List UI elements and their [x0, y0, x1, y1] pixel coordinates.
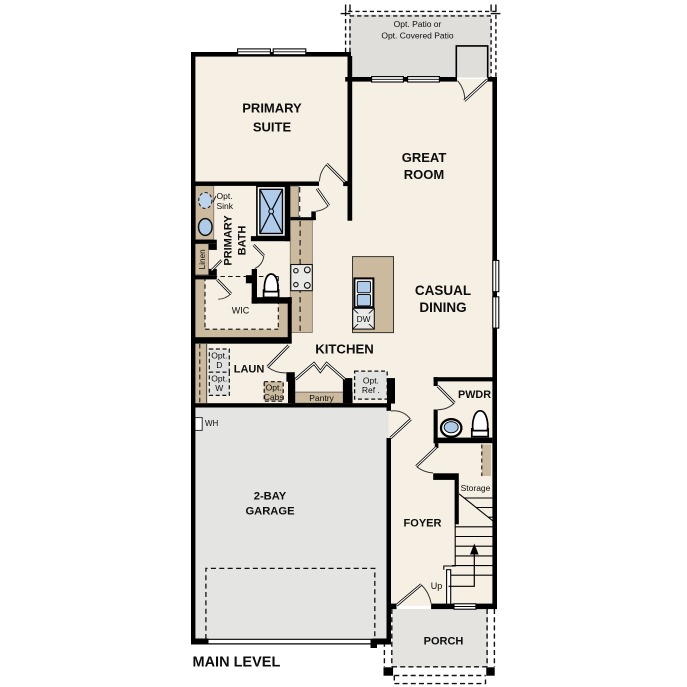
svg-text:Pantry: Pantry — [309, 393, 334, 403]
svg-text:Opt.: Opt. — [211, 351, 227, 361]
svg-text:Ref .: Ref . — [362, 385, 380, 395]
svg-text:Sink: Sink — [217, 201, 234, 211]
svg-text:GREAT: GREAT — [402, 150, 447, 165]
svg-text:Opt.: Opt. — [217, 191, 233, 201]
svg-text:GARAGE: GARAGE — [245, 506, 295, 518]
svg-text:Storage: Storage — [461, 483, 491, 493]
svg-text:PORCH: PORCH — [424, 636, 464, 648]
svg-text:Opt. Patio or: Opt. Patio or — [394, 19, 442, 29]
svg-text:PWDR: PWDR — [458, 389, 491, 401]
svg-text:Linen: Linen — [198, 249, 207, 269]
svg-text:CASUAL: CASUAL — [415, 283, 471, 298]
svg-text:DW: DW — [357, 314, 371, 324]
svg-text:SUITE: SUITE — [253, 120, 292, 135]
svg-text:PRIMARY: PRIMARY — [242, 101, 302, 116]
svg-text:D: D — [216, 360, 222, 370]
svg-text:Opt.: Opt. — [211, 374, 227, 384]
svg-text:PRIMARY: PRIMARY — [223, 215, 235, 266]
svg-text:BATH: BATH — [237, 226, 249, 256]
svg-text:ROOM: ROOM — [404, 167, 444, 182]
svg-text:FOYER: FOYER — [404, 517, 442, 529]
svg-text:Up: Up — [431, 581, 443, 591]
svg-text:Opt.: Opt. — [363, 376, 379, 386]
svg-text:Cabs: Cabs — [264, 392, 284, 402]
svg-text:Opt. Covered Patio: Opt. Covered Patio — [381, 31, 454, 41]
svg-text:WIC: WIC — [232, 306, 250, 316]
svg-text:2-BAY: 2-BAY — [254, 491, 287, 503]
svg-text:DINING: DINING — [419, 300, 466, 315]
svg-text:LAUN: LAUN — [234, 363, 265, 375]
svg-text:W: W — [215, 383, 223, 393]
svg-text:KITCHEN: KITCHEN — [315, 342, 374, 357]
svg-text:MAIN LEVEL: MAIN LEVEL — [193, 654, 281, 670]
svg-text:WH: WH — [205, 419, 219, 428]
